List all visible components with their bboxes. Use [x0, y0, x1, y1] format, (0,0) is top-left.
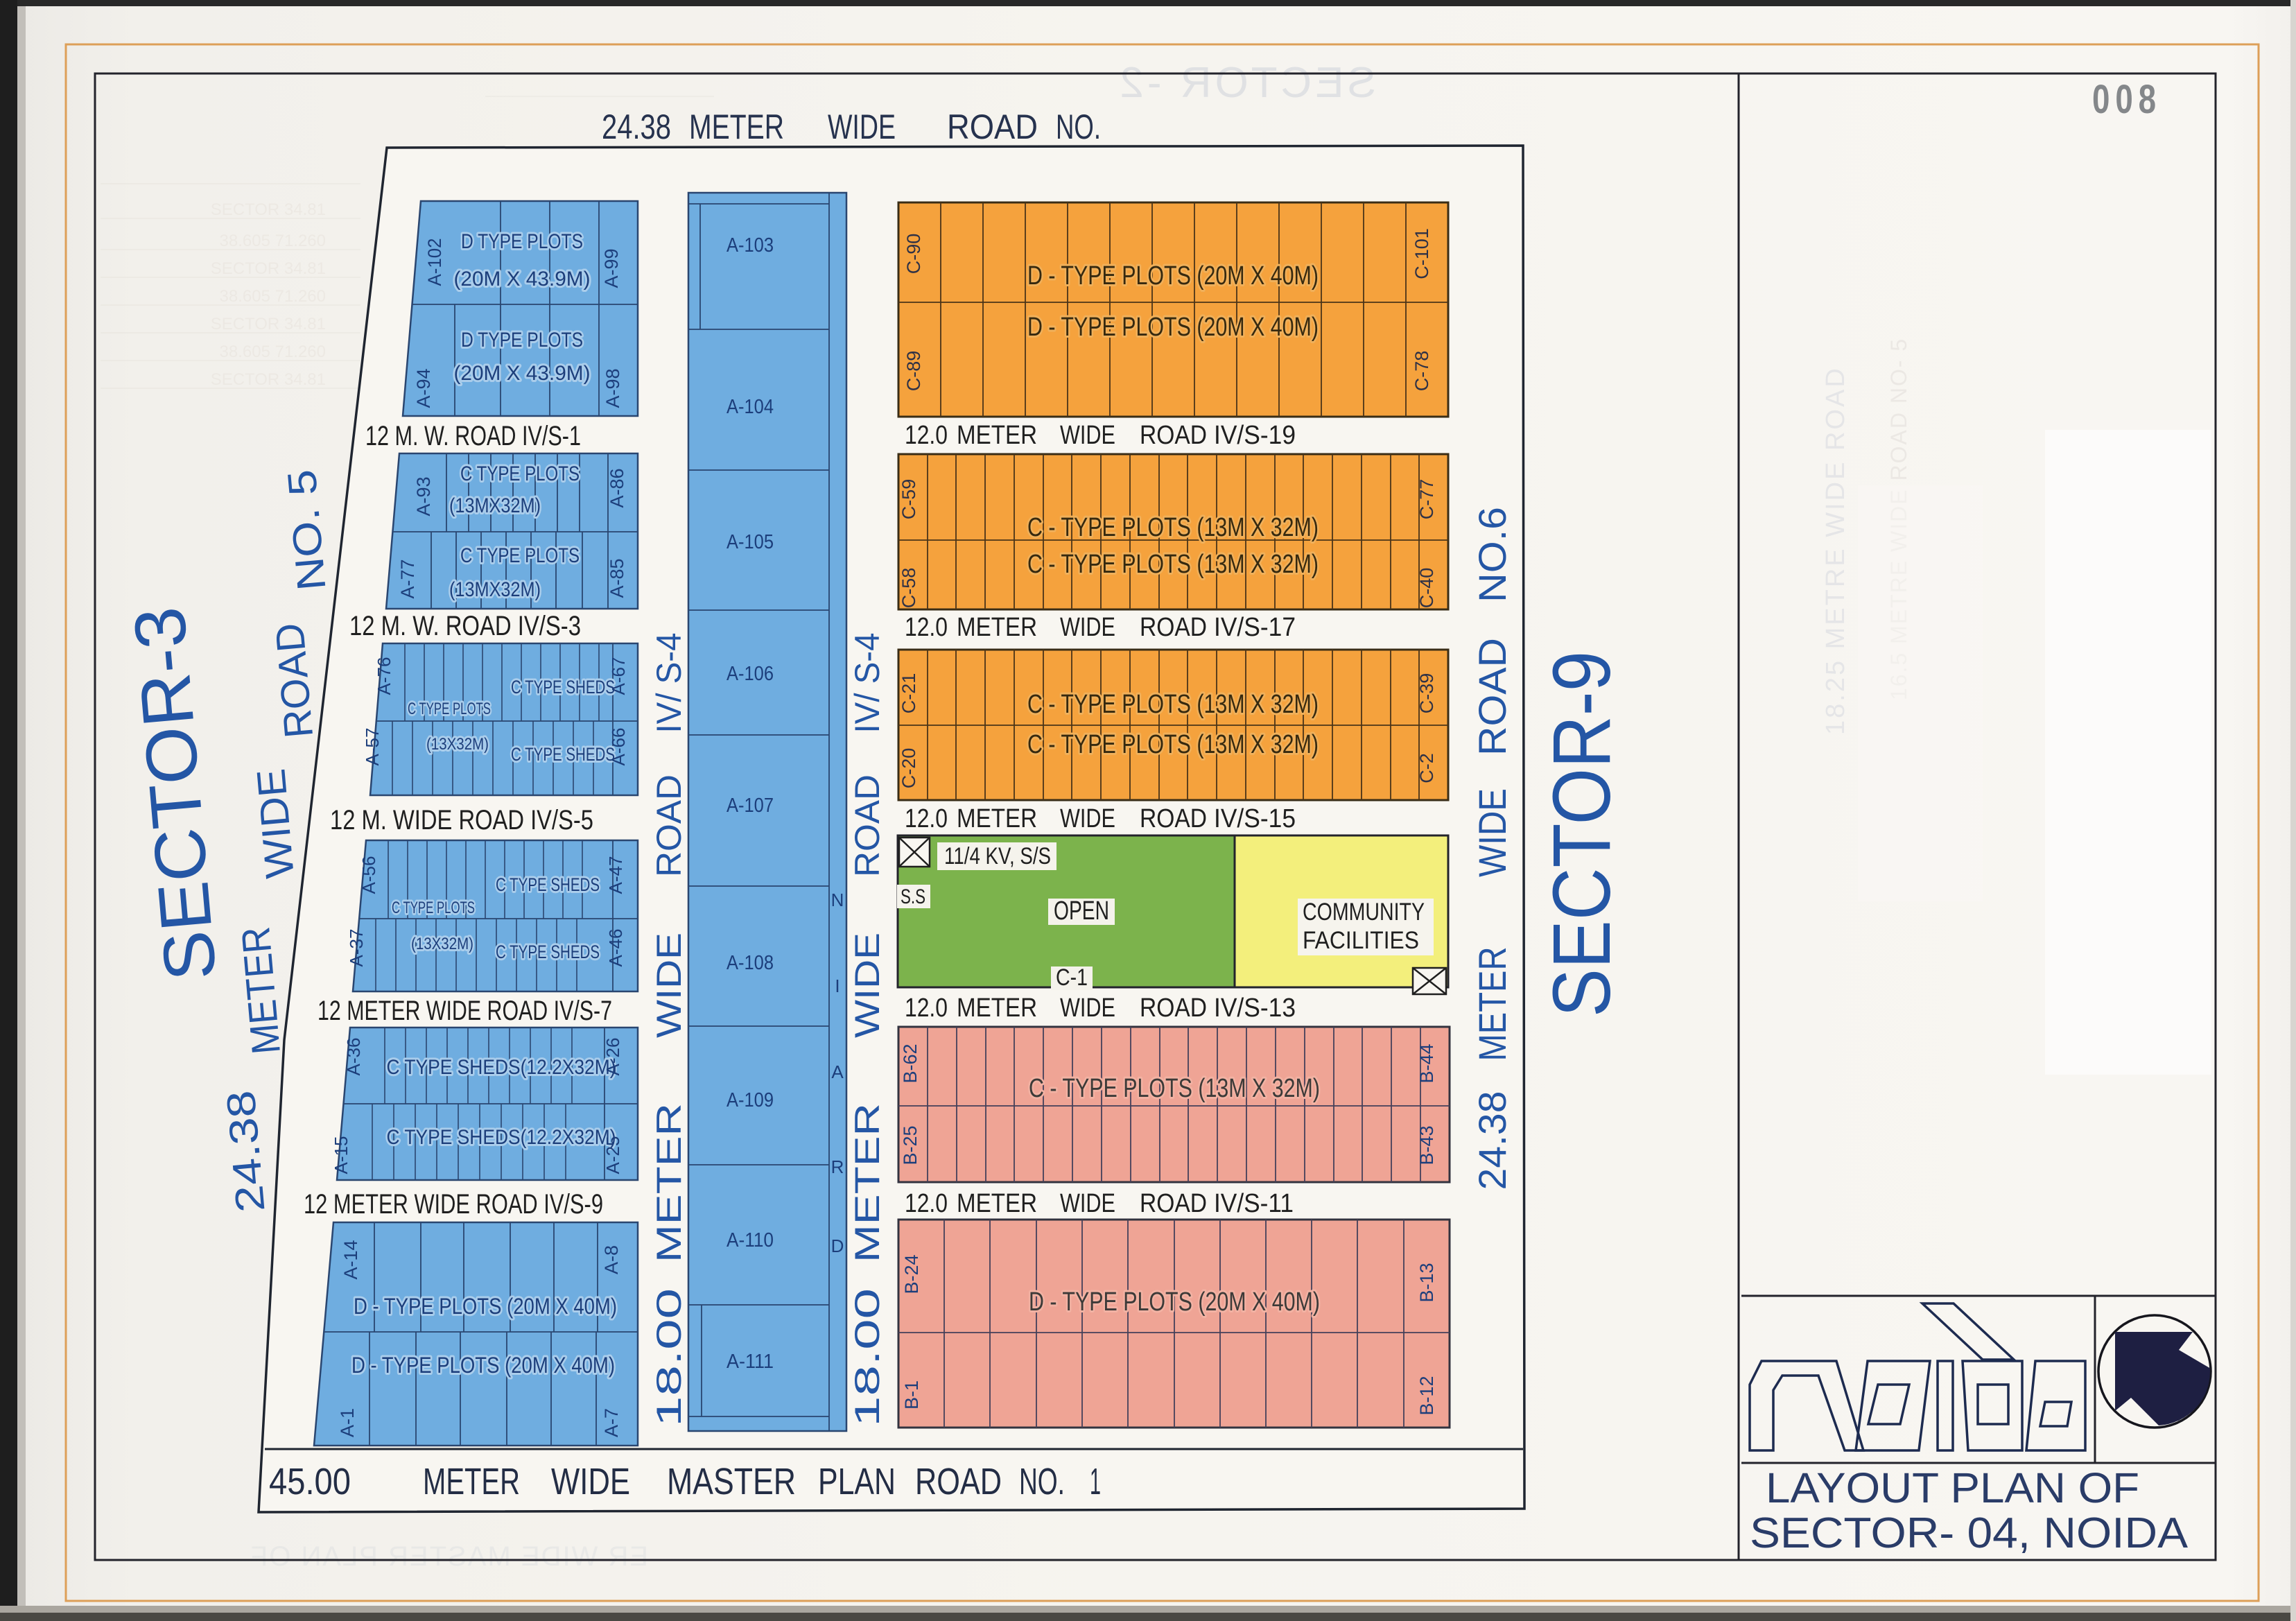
svg-text:SECTOR 34.81: SECTOR 34.81: [211, 259, 326, 278]
svg-text:B-44: B-44: [1416, 1043, 1437, 1083]
svg-text:008: 008: [2092, 77, 2162, 122]
svg-text:C-90: C-90: [903, 234, 924, 275]
svg-text:S.S: S.S: [901, 885, 925, 908]
svg-text:NO.: NO.: [1019, 1461, 1065, 1502]
svg-text:ROAD: ROAD: [1140, 994, 1207, 1023]
svg-text:12 METER WIDE ROAD IV/S-9: 12 METER WIDE ROAD IV/S-9: [304, 1189, 603, 1220]
svg-text:OPEN: OPEN: [1054, 896, 1109, 926]
svg-text:A-8: A-8: [601, 1245, 622, 1274]
svg-text:SECTOR- 04, NOIDA: SECTOR- 04, NOIDA: [1750, 1509, 2189, 1557]
svg-text:IV/S-11: IV/S-11: [1214, 1189, 1294, 1218]
svg-text:A: A: [831, 1061, 844, 1082]
svg-text:IV/S-15: IV/S-15: [1214, 804, 1296, 833]
svg-text:METER: METER: [957, 1189, 1037, 1218]
svg-text:12 M. WIDE ROAD IV/S-5: 12 M. WIDE ROAD IV/S-5: [330, 805, 593, 835]
svg-text:A-36: A-36: [343, 1038, 364, 1076]
svg-text:WIDE: WIDE: [1060, 804, 1115, 833]
svg-text:12 M. W. ROAD IV/S-1: 12 M. W. ROAD IV/S-1: [365, 421, 581, 451]
svg-text:A-77: A-77: [397, 559, 418, 598]
svg-text:(13X32M): (13X32M): [411, 935, 473, 953]
svg-text:IV/S-13: IV/S-13: [1214, 994, 1296, 1023]
svg-text:A-107: A-107: [727, 795, 774, 817]
svg-text:ROAD: ROAD: [1470, 638, 1514, 756]
svg-text:B-12: B-12: [1416, 1376, 1437, 1415]
svg-text:B-13: B-13: [1416, 1263, 1437, 1302]
svg-text:C - TYPE PLOTS (13M X 32M): C - TYPE PLOTS (13M X 32M): [1027, 730, 1319, 759]
svg-text:C-2: C-2: [1416, 753, 1437, 783]
svg-text:ROAD: ROAD: [947, 107, 1038, 146]
svg-text:C - TYPE PLOTS (13M X 32M): C - TYPE PLOTS (13M X 32M): [1027, 550, 1319, 579]
svg-text:A-25: A-25: [602, 1136, 623, 1174]
svg-text:D - TYPE PLOTS (20M X 40M): D - TYPE PLOTS (20M X 40M): [1029, 1288, 1320, 1317]
svg-text:D - TYPE PLOTS (20M X 40M): D - TYPE PLOTS (20M X 40M): [1027, 261, 1319, 291]
svg-text:(13MX32M): (13MX32M): [449, 494, 541, 517]
svg-text:A-57: A-57: [362, 728, 383, 766]
svg-text:A-46: A-46: [605, 929, 626, 967]
svg-text:C TYPE SHEDS: C TYPE SHEDS: [496, 942, 600, 962]
svg-text:A-14: A-14: [340, 1240, 361, 1279]
svg-text:A-26: A-26: [602, 1038, 623, 1076]
svg-text:24.38: 24.38: [602, 107, 671, 146]
svg-text:ROAD: ROAD: [1140, 1189, 1207, 1218]
svg-text:B-1: B-1: [901, 1380, 922, 1410]
svg-text:A-110: A-110: [727, 1229, 774, 1251]
svg-text:LAYOUT PLAN OF: LAYOUT PLAN OF: [1766, 1464, 2139, 1511]
svg-text:C TYPE SHEDS: C TYPE SHEDS: [511, 744, 615, 765]
svg-text:C-59: C-59: [898, 479, 919, 520]
svg-text:I: I: [835, 976, 840, 996]
svg-text:D - TYPE PLOTS (20M X 40M): D - TYPE PLOTS (20M X 40M): [351, 1353, 615, 1378]
svg-text:B-25: B-25: [900, 1125, 921, 1165]
svg-text:WIDE: WIDE: [1060, 994, 1115, 1023]
svg-text:A-37: A-37: [346, 929, 367, 967]
svg-text:A-104: A-104: [727, 396, 774, 418]
svg-text:C TYPE SHEDS: C TYPE SHEDS: [511, 677, 615, 697]
svg-text:38.605 71.260: 38.605 71.260: [220, 343, 326, 361]
svg-text:METER: METER: [957, 804, 1037, 833]
svg-text:MASTER: MASTER: [667, 1461, 796, 1502]
svg-text:METER: METER: [957, 613, 1037, 642]
svg-text:12.0: 12.0: [905, 421, 948, 450]
svg-text:WIDE: WIDE: [248, 767, 303, 880]
svg-text:A-56: A-56: [358, 856, 379, 894]
svg-text:A-15: A-15: [331, 1136, 351, 1174]
svg-text:IV/S-17: IV/S-17: [1214, 613, 1296, 642]
svg-text:IV/ S-4: IV/ S-4: [848, 633, 887, 734]
svg-text:ROAD: ROAD: [1140, 613, 1207, 642]
svg-text:C TYPE SHEDS: C TYPE SHEDS: [496, 874, 600, 895]
svg-text:C-78: C-78: [1411, 351, 1432, 392]
svg-text:A-105: A-105: [727, 531, 774, 553]
svg-text:18.25 METRE WIDE ROAD: 18.25 METRE WIDE ROAD: [1821, 366, 1850, 735]
svg-text:38.605 71.260: 38.605 71.260: [220, 287, 326, 306]
svg-text:A-111: A-111: [727, 1351, 774, 1373]
svg-text:WIDE: WIDE: [1470, 788, 1514, 877]
svg-text:A-99: A-99: [601, 248, 622, 288]
svg-text:WIDE: WIDE: [551, 1461, 630, 1502]
svg-text:A-86: A-86: [607, 468, 627, 508]
svg-text:1: 1: [1090, 1461, 1101, 1502]
svg-text:B-24: B-24: [901, 1254, 922, 1294]
svg-text:C TYPE SHEDS(12.2X32M): C TYPE SHEDS(12.2X32M): [387, 1056, 616, 1079]
svg-text:A-109: A-109: [727, 1089, 774, 1111]
svg-text:SECTOR -2: SECTOR -2: [1116, 59, 1376, 107]
svg-text:A-102: A-102: [424, 239, 445, 286]
svg-text:12.0: 12.0: [905, 613, 948, 642]
svg-text:12 METER WIDE ROAD IV/S-7: 12 METER WIDE ROAD IV/S-7: [318, 996, 612, 1026]
svg-text:A-7: A-7: [601, 1408, 622, 1437]
svg-text:SECTOR 34.81: SECTOR 34.81: [211, 200, 326, 219]
svg-text:R: R: [831, 1156, 844, 1177]
svg-text:C-40: C-40: [1416, 568, 1437, 609]
svg-text:METER: METER: [848, 1103, 887, 1263]
svg-text:D TYPE PLOTS: D TYPE PLOTS: [461, 230, 583, 253]
svg-text:WIDE: WIDE: [1060, 613, 1115, 642]
svg-text:18.00: 18.00: [848, 1288, 887, 1427]
svg-text:C-1: C-1: [1056, 964, 1088, 991]
svg-text:WIDE: WIDE: [1060, 421, 1115, 450]
svg-text:A-94: A-94: [413, 368, 434, 408]
svg-text:WIDE: WIDE: [848, 933, 887, 1038]
svg-text:(13X32M): (13X32M): [426, 735, 489, 754]
svg-text:C TYPE PLOTS: C TYPE PLOTS: [460, 544, 580, 567]
svg-text:SECTOR 34.81: SECTOR 34.81: [211, 370, 326, 389]
svg-text:12.0: 12.0: [905, 1189, 948, 1218]
svg-text:C - TYPE PLOTS (13M X 32M): C - TYPE PLOTS (13M X 32M): [1029, 1074, 1320, 1103]
svg-text:(13MX32M): (13MX32M): [449, 578, 541, 601]
svg-text:18.00: 18.00: [650, 1288, 688, 1427]
svg-text:D: D: [831, 1236, 844, 1256]
svg-text:24.38: 24.38: [1470, 1091, 1514, 1190]
svg-text:A-106: A-106: [727, 663, 774, 685]
svg-text:A-98: A-98: [602, 368, 623, 408]
svg-text:FACILITIES: FACILITIES: [1303, 927, 1419, 954]
svg-text:METER: METER: [423, 1461, 520, 1502]
svg-text:NO.: NO.: [1056, 107, 1101, 146]
svg-text:ROAD: ROAD: [650, 774, 688, 877]
svg-text:METER: METER: [1470, 947, 1514, 1061]
svg-text:C - TYPE PLOTS (13M X 32M): C - TYPE PLOTS (13M X 32M): [1027, 690, 1319, 719]
svg-text:C-39: C-39: [1416, 673, 1437, 714]
svg-text:METER: METER: [957, 994, 1037, 1023]
svg-text:12.0: 12.0: [905, 994, 948, 1023]
svg-text:C TYPE PLOTS: C TYPE PLOTS: [460, 462, 580, 485]
svg-text:IV/S-19: IV/S-19: [1214, 421, 1296, 450]
svg-text:PLAN: PLAN: [818, 1461, 896, 1502]
svg-text:SECTOR 34.81: SECTOR 34.81: [211, 315, 326, 333]
svg-text:A-108: A-108: [727, 952, 774, 974]
svg-text:METER: METER: [957, 421, 1037, 450]
svg-text:C-77: C-77: [1416, 479, 1437, 520]
svg-text:COMMUNITY: COMMUNITY: [1303, 899, 1425, 926]
svg-text:SECTOR-9: SECTOR-9: [1536, 651, 1628, 1017]
svg-text:ROAD: ROAD: [1140, 804, 1207, 833]
svg-text:(20M X 43.9M): (20M X 43.9M): [454, 362, 591, 385]
svg-text:A-76: A-76: [374, 657, 394, 695]
svg-text:METER: METER: [689, 107, 784, 146]
svg-text:METER: METER: [650, 1103, 688, 1263]
svg-text:12 M. W. ROAD IV/S-3: 12 M. W. ROAD IV/S-3: [349, 611, 581, 641]
svg-text:C-101: C-101: [1411, 228, 1432, 279]
svg-text:12.0: 12.0: [905, 804, 948, 833]
svg-text:A-85: A-85: [607, 558, 627, 598]
svg-text:C-20: C-20: [898, 748, 919, 789]
svg-text:A-93: A-93: [413, 476, 434, 516]
svg-text:D - TYPE PLOTS (20M X 40M): D - TYPE PLOTS (20M X 40M): [1027, 313, 1319, 342]
svg-text:11/4 KV, S/S: 11/4 KV, S/S: [944, 843, 1051, 869]
svg-text:IV/ S-4: IV/ S-4: [650, 633, 688, 734]
svg-text:38.605 71.260: 38.605 71.260: [220, 232, 326, 250]
svg-text:A-67: A-67: [608, 657, 629, 695]
svg-text:WIDE: WIDE: [650, 933, 688, 1038]
svg-text:ER WIDE MASTER PLAN OF: ER WIDE MASTER PLAN OF: [250, 1541, 648, 1572]
svg-text:A-1: A-1: [337, 1408, 358, 1437]
svg-text:(20M X 43.9M): (20M X 43.9M): [454, 268, 591, 291]
svg-text:D TYPE PLOTS: D TYPE PLOTS: [461, 329, 583, 352]
svg-text:C - TYPE PLOTS (13M X 32M): C - TYPE PLOTS (13M X 32M): [1027, 513, 1319, 542]
svg-text:D - TYPE PLOTS (20M X 40M): D - TYPE PLOTS (20M X 40M): [354, 1294, 617, 1319]
svg-text:B-43: B-43: [1416, 1125, 1437, 1165]
svg-text:C TYPE PLOTS: C TYPE PLOTS: [408, 700, 491, 718]
svg-text:A-47: A-47: [605, 856, 626, 894]
svg-text:C-21: C-21: [898, 673, 919, 714]
svg-text:ROAD: ROAD: [915, 1461, 1002, 1502]
svg-text:WIDE: WIDE: [1060, 1189, 1115, 1218]
svg-text:A-103: A-103: [727, 234, 774, 257]
svg-text:ROAD: ROAD: [1140, 421, 1207, 450]
svg-text:NO.6: NO.6: [1470, 507, 1514, 603]
svg-text:ROAD: ROAD: [848, 774, 887, 877]
svg-text:C TYPE SHEDS(12.2X32M): C TYPE SHEDS(12.2X32M): [387, 1126, 616, 1149]
svg-text:C-89: C-89: [903, 351, 924, 392]
svg-text:WIDE: WIDE: [828, 107, 896, 146]
svg-text:C TYPE PLOTS: C TYPE PLOTS: [392, 899, 475, 917]
svg-text:B-62: B-62: [900, 1043, 921, 1083]
svg-text:N: N: [831, 890, 844, 910]
svg-text:C-58: C-58: [898, 568, 919, 609]
svg-text:A-66: A-66: [608, 728, 629, 766]
svg-text:45.00: 45.00: [269, 1461, 351, 1502]
